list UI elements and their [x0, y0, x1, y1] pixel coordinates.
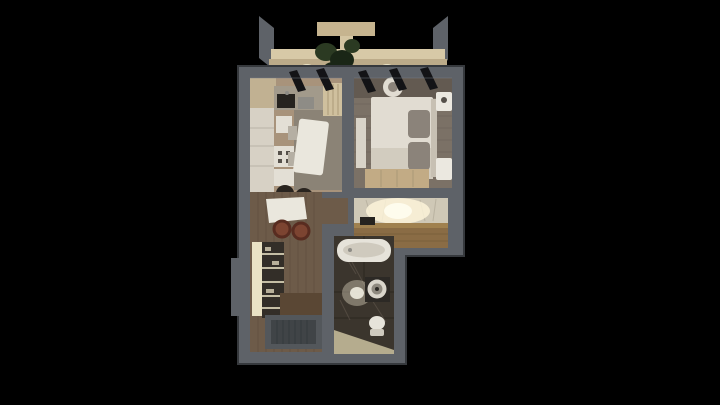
- stool: [274, 221, 290, 237]
- left-cabinet-run: [250, 108, 274, 192]
- wardrobe-mirror: [356, 118, 366, 168]
- room-bathroom: [334, 236, 394, 354]
- nightstand-decor: [441, 97, 447, 103]
- plant: [344, 39, 360, 53]
- toilet-tank: [370, 329, 384, 336]
- bathtub-drain: [348, 248, 352, 252]
- cooktop: [298, 97, 314, 109]
- kitchen-wall-patch: [250, 78, 276, 108]
- room-kitchen-living: [250, 78, 342, 204]
- console-desk: [266, 197, 307, 223]
- faucet: [285, 91, 289, 95]
- toilet: [369, 316, 385, 330]
- wall-light-core: [384, 203, 412, 219]
- floorplan-render: [0, 0, 720, 405]
- room-bedroom: [354, 77, 452, 188]
- model-viewport[interactable]: [0, 0, 720, 405]
- dining-chair: [288, 126, 297, 140]
- pillow: [408, 142, 430, 170]
- hall-cabinet-item: [360, 217, 375, 225]
- stool: [293, 223, 309, 239]
- nightstand: [436, 158, 452, 180]
- bathroom-light-core: [350, 287, 364, 299]
- low-cabinet: [274, 169, 294, 186]
- entrance-door: [280, 293, 322, 315]
- kitchen-sink: [277, 94, 295, 108]
- balcony-canopy: [317, 22, 375, 36]
- left-wall-step: [231, 258, 240, 316]
- shelf-side-panel: [252, 242, 262, 316]
- washer-door-hub: [375, 287, 379, 291]
- pillow: [408, 110, 430, 138]
- doormat-inner: [271, 320, 316, 344]
